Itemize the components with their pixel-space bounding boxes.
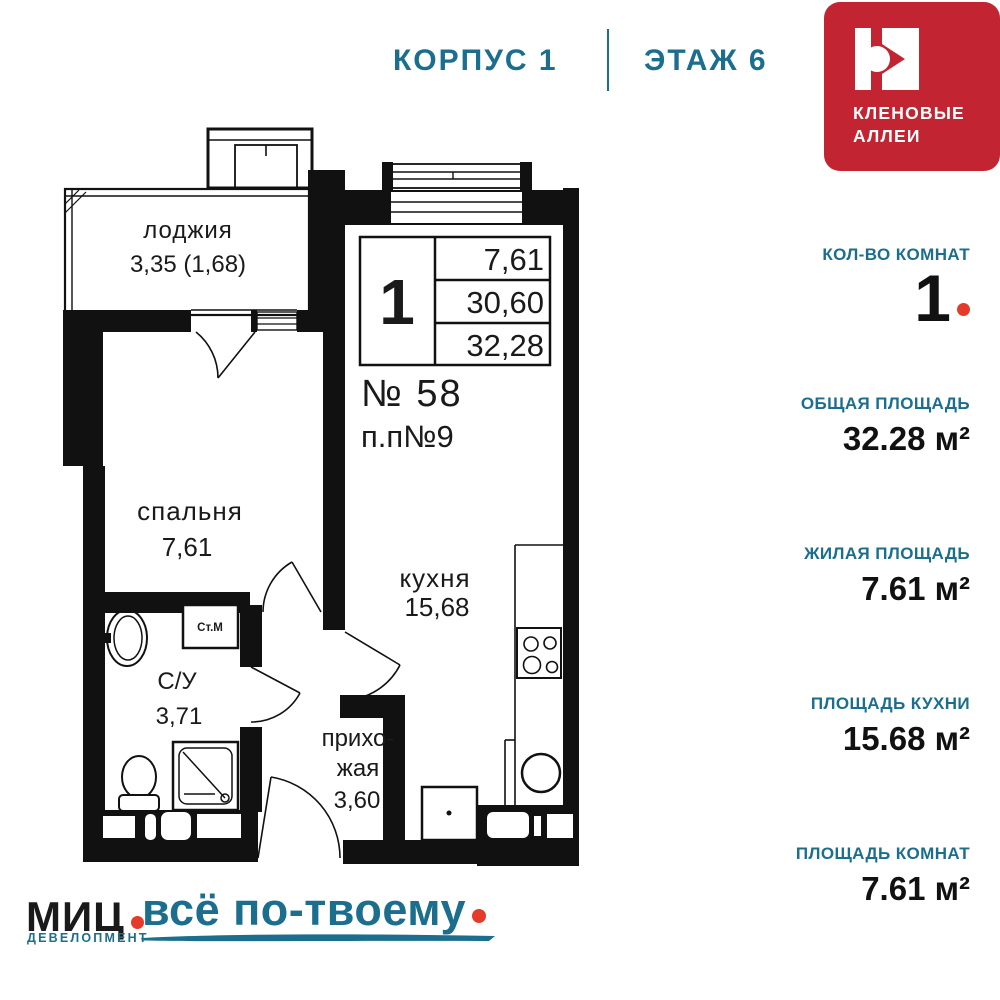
developer-subtitle: ДЕВЕЛОПМЕНТ [27,931,149,945]
door-arc-loggia [196,332,255,378]
room-label-kitchen: кухня [399,563,470,593]
kitchen-window [391,192,522,223]
living-area-value: 7.61 м² [710,570,970,608]
total-area-label: ОБЩАЯ ПЛОЩАДЬ [710,394,970,414]
brand-name-line2: АЛЛЕИ [853,126,921,147]
loggia-door-window [191,310,297,330]
stamp-rooms: 1 [379,266,415,338]
sidebar-block-living-area: ЖИЛАЯ ПЛОЩАДЬ 7.61 м² [710,544,970,608]
shower-cabin [173,742,238,810]
stamp-table: 1 7,61 30,60 32,28 № 58 п.п№9 [360,237,550,454]
slogan-underline [139,931,497,945]
room-area-bedroom: 7,61 [162,532,213,562]
kitchen-area-value: 15.68 м² [710,720,970,758]
building-label: КОРПУС 1 [393,44,558,78]
klenovye-allei-logo[interactable]: КЛЕНОВЫЕ АЛЛЕИ [824,2,1000,171]
room-label-hallway-2: жая [337,755,379,782]
rooms-area-value: 7.61 м² [710,870,970,908]
sidebar-block-kitchen-area: ПЛОЩАДЬ КУХНИ 15.68 м² [710,694,970,758]
accent-dot [472,909,486,923]
kitchen-area-label: ПЛОЩАДЬ КУХНИ [710,694,970,714]
door-arc-bedroom [263,562,321,612]
room-area-loggia: 3,35 (1,68) [130,251,246,278]
slogan: всё по-твоему [142,884,486,936]
rooms-area-label: ПЛОЩАДЬ КОМНАТ [710,844,970,864]
door-arc-bathroom [251,667,300,722]
upper-window-outline [391,164,522,188]
sidebar-block-rooms: КОЛ-ВО КОМНАТ 1 [710,245,970,330]
door-arc-entrance [258,777,340,858]
accent-dot [957,303,970,316]
room-area-hallway: 3,60 [334,787,381,814]
washing-machine: Ст.М [183,605,238,648]
wall-cap-right [520,162,532,190]
sidebar-block-total-area: ОБЩАЯ ПЛОЩАДЬ 32.28 м² [710,394,970,458]
stamp-area-no-loggia: 30,60 [466,285,544,320]
header-divider [607,29,609,91]
room-label-hallway-1: прихо- [322,725,395,752]
rooms-count-value: 1 [710,267,970,330]
wall-vents-left [103,812,241,840]
wall-cap-left [382,162,393,190]
room-label-bedroom: спальня [137,496,243,526]
total-area-value: 32.28 м² [710,420,970,458]
sidebar-block-rooms-area: ПЛОЩАДЬ КОМНАТ 7.61 м² [710,844,970,908]
room-labels: лоджия 3,35 (1,68) спальня 7,61 С/У 3,71… [130,217,471,814]
floor-plan: 1 7,61 30,60 32,28 № 58 п.п№9 лоджия 3,3… [55,100,585,870]
brand-name-line1: КЛЕНОВЫЕ [853,103,965,124]
kitchen-sink [522,754,560,792]
room-label-bathroom: С/У [157,668,197,695]
pp-number: п.п№9 [361,419,454,454]
toilet [119,756,159,811]
room-area-bathroom: 3,71 [156,703,203,730]
fridge [422,787,477,840]
door-arc-kitchen [345,632,400,700]
stamp-living-area: 7,61 [484,242,544,277]
room-area-kitchen: 15,68 [404,592,469,622]
washer-label: Ст.М [197,622,223,634]
bathroom-sink [103,610,147,666]
apartment-card: КОРПУС 1 ЭТАЖ 6 КЛЕНОВЫЕ АЛЛЕИ [0,0,1000,1000]
brand-k-icon [824,2,1000,102]
neighbor-balcony-outline [208,129,312,188]
room-label-loggia: лоджия [143,217,233,244]
apartment-number: № 58 [361,373,463,415]
floor-label: ЭТАЖ 6 [644,44,768,78]
stove [517,628,561,678]
stamp-total-area: 32,28 [466,328,544,363]
living-area-label: ЖИЛАЯ ПЛОЩАДЬ [710,544,970,564]
